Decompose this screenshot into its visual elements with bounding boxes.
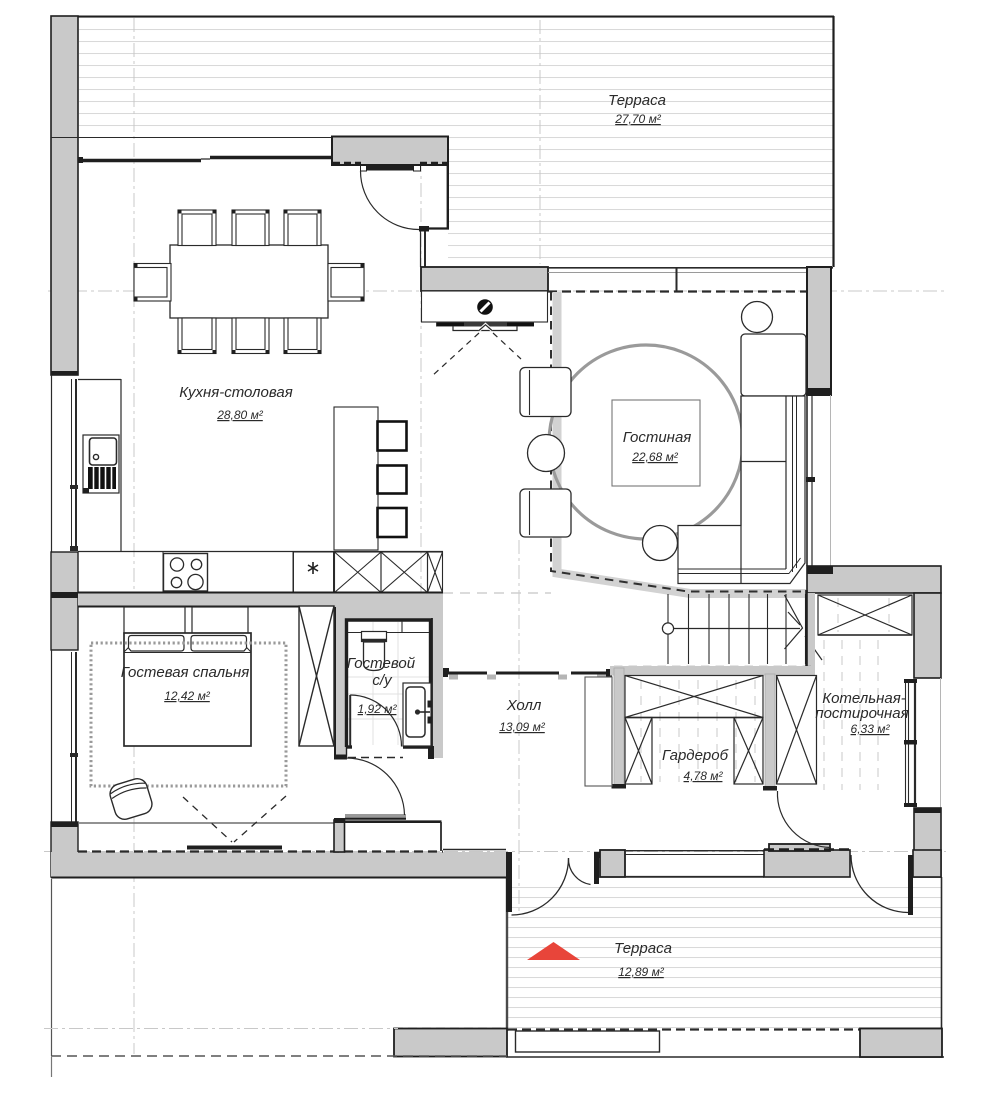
svg-text:Терраса: Терраса [614, 940, 672, 957]
svg-text:Гардероб: Гардероб [662, 747, 729, 764]
svg-text:27,70 м²: 27,70 м² [614, 112, 662, 126]
svg-text:6,33 м²: 6,33 м² [851, 722, 891, 736]
svg-text:постирочная: постирочная [815, 705, 908, 722]
svg-text:с/у: с/у [372, 672, 393, 689]
svg-text:28,80 м²: 28,80 м² [216, 408, 264, 422]
svg-text:Холл: Холл [506, 697, 542, 714]
svg-text:Гостиная: Гостиная [623, 429, 692, 446]
svg-text:22,68 м²: 22,68 м² [631, 450, 679, 464]
svg-text:Гостевая спальня: Гостевая спальня [121, 664, 250, 681]
svg-text:Гостевой: Гостевой [347, 655, 416, 672]
svg-text:13,09 м²: 13,09 м² [499, 720, 546, 734]
svg-text:4,78 м²: 4,78 м² [684, 769, 724, 783]
svg-text:Терраса: Терраса [608, 92, 666, 109]
svg-text:12,89 м²: 12,89 м² [618, 965, 665, 979]
svg-text:1,92 м²: 1,92 м² [358, 702, 398, 716]
svg-text:Кухня-столовая: Кухня-столовая [179, 384, 292, 401]
svg-text:12,42 м²: 12,42 м² [164, 689, 211, 703]
